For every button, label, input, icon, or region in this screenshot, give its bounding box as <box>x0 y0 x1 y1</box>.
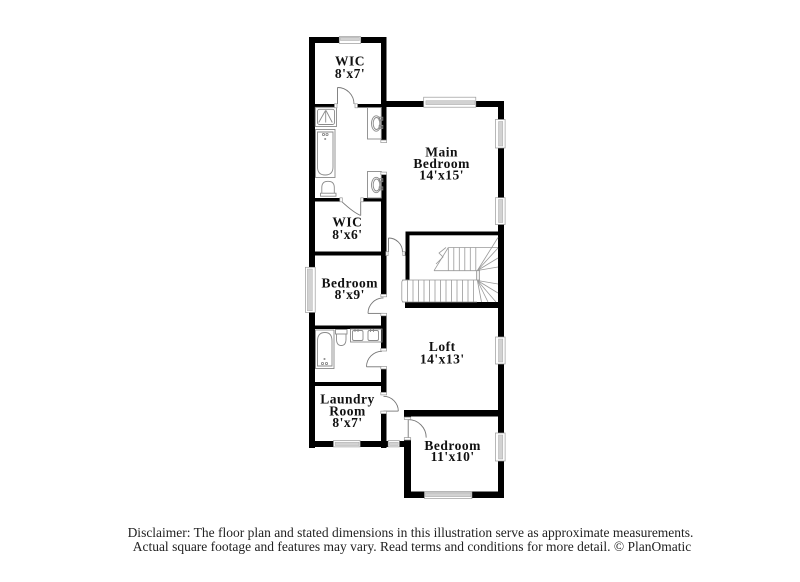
svg-text:Disclaimer: The floor plan and: Disclaimer: The floor plan and stated di… <box>128 525 694 540</box>
svg-text:14'x13': 14'x13' <box>420 352 465 367</box>
svg-text:14'x15': 14'x15' <box>419 168 464 183</box>
svg-text:8'x6': 8'x6' <box>332 227 362 242</box>
svg-text:8'x9': 8'x9' <box>335 287 365 302</box>
svg-text:8'x7': 8'x7' <box>332 415 362 430</box>
svg-text:8'x7': 8'x7' <box>335 66 365 81</box>
svg-text:Actual square footage and feat: Actual square footage and features may v… <box>133 539 692 554</box>
svg-text:11'x10': 11'x10' <box>431 449 475 464</box>
